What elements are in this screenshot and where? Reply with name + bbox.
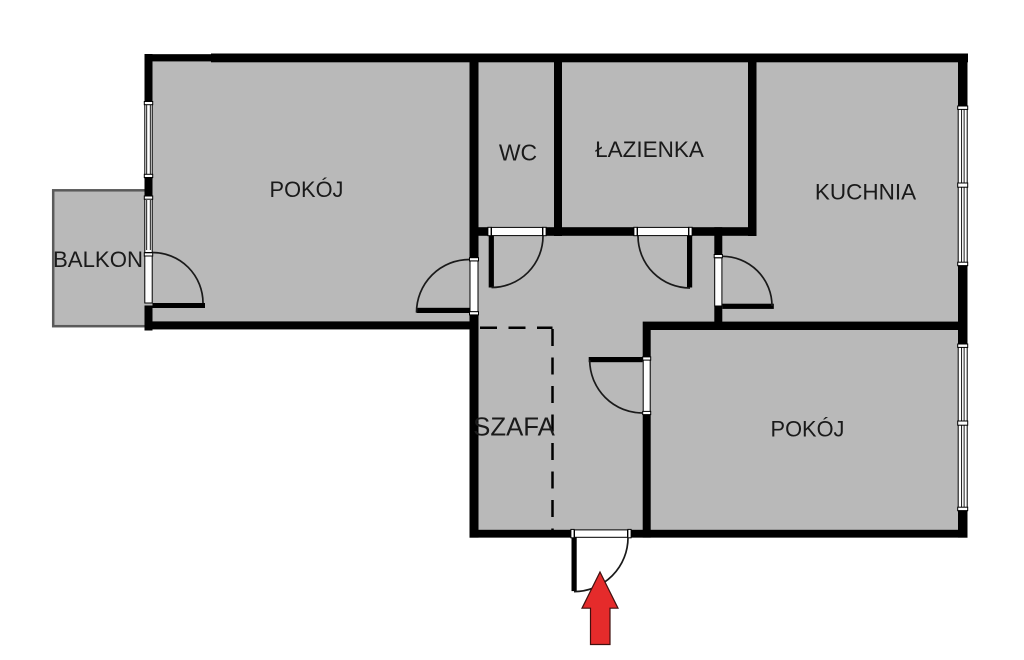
svg-text:WC: WC: [499, 140, 537, 166]
svg-text:POKÓJ: POKÓJ: [270, 177, 344, 202]
svg-text:POKÓJ: POKÓJ: [771, 417, 845, 442]
svg-text:BALKON: BALKON: [53, 247, 143, 272]
svg-text:ŁAZIENKA: ŁAZIENKA: [595, 137, 704, 162]
svg-text:KUCHNIA: KUCHNIA: [815, 179, 916, 204]
svg-text:SZAFA: SZAFA: [473, 414, 556, 442]
